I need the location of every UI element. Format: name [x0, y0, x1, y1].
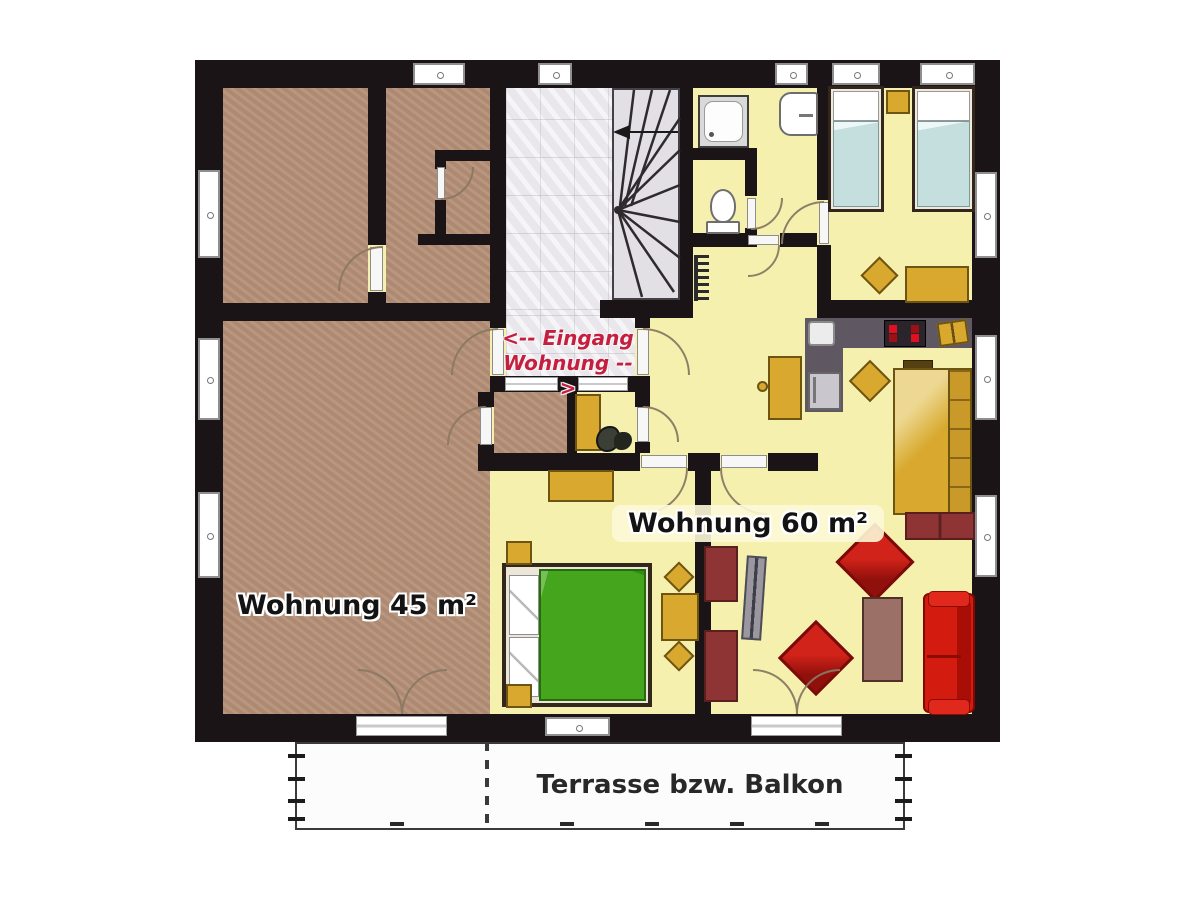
door-leaf — [748, 235, 779, 245]
railing-tick — [730, 822, 744, 826]
sideboard — [704, 546, 738, 602]
window — [975, 335, 997, 420]
apartment-45-living-room — [223, 321, 490, 714]
door-leaf-entrance-60 — [637, 329, 649, 375]
railing-tick — [288, 817, 305, 821]
wall-segment — [768, 453, 818, 471]
coffee-table — [862, 597, 903, 682]
wall-segment — [478, 392, 494, 407]
wall-closet — [435, 150, 490, 161]
label-apartment-45: Wohnung 45 m² — [237, 590, 477, 621]
wardrobe — [548, 470, 614, 502]
pillow — [509, 575, 539, 635]
radiator-icon — [694, 255, 709, 301]
faucet — [799, 114, 813, 117]
apartment-45-room-top-left — [223, 88, 368, 303]
wall-segment — [223, 303, 490, 321]
door-leaf — [637, 407, 649, 442]
railing-tick — [560, 822, 574, 826]
sofa-armrest — [928, 699, 970, 715]
label-apartment-60: Wohnung 60 m² — [612, 505, 884, 542]
door-leaf — [437, 167, 445, 199]
sofa-red — [923, 593, 975, 713]
railing-tick — [288, 777, 305, 781]
wall-bathroom — [693, 148, 745, 160]
twin-bed-1 — [828, 86, 884, 212]
wall-bathroom — [693, 233, 745, 247]
fridge-handle — [813, 377, 816, 403]
railing-tick — [895, 754, 912, 758]
wall-segment — [368, 88, 386, 245]
nightstand — [506, 684, 532, 708]
stove-icon — [884, 320, 926, 347]
sofa-seam — [927, 655, 961, 658]
wall-segment — [635, 442, 650, 453]
label-entrance-line1: <-- Eingang — [498, 326, 638, 351]
blanket-green — [539, 569, 646, 701]
window — [198, 338, 220, 420]
wall-bathroom — [780, 233, 817, 247]
window — [920, 63, 975, 85]
sideboard — [704, 630, 738, 702]
french-door-sill — [356, 716, 447, 736]
sink-icon — [779, 92, 818, 136]
window — [975, 495, 997, 577]
twin-bed-2 — [912, 86, 975, 212]
railing-tick — [288, 754, 305, 758]
nightstand — [506, 541, 532, 565]
window — [832, 63, 880, 85]
railing-tick — [390, 822, 404, 826]
railing-tick — [645, 822, 659, 826]
cutting-board — [936, 319, 969, 347]
window — [413, 63, 465, 85]
shower-icon — [698, 95, 749, 148]
wall-bedroom-tr-left — [817, 245, 831, 300]
stool — [757, 381, 768, 392]
burner — [889, 325, 897, 333]
door-leaf — [480, 407, 492, 445]
wall-stairwell-right — [680, 88, 693, 318]
sofa-armrest — [928, 591, 970, 607]
wall-stairwell-left — [490, 88, 506, 328]
window — [198, 492, 220, 578]
nightstand — [886, 90, 910, 114]
door-leaf — [370, 247, 383, 291]
label-terrace: Terrasse bzw. Balkon — [480, 770, 900, 800]
wall-bedroom-top — [478, 453, 640, 471]
burner — [911, 325, 919, 333]
wall-segment — [688, 453, 720, 471]
window — [198, 170, 220, 258]
window — [975, 172, 997, 258]
door-leaf — [747, 198, 756, 229]
burner — [911, 334, 919, 342]
blanket — [833, 121, 879, 207]
wall-bathroom — [745, 148, 757, 196]
sofa-back — [957, 601, 971, 705]
railing-tick — [815, 822, 829, 826]
wall-segment — [478, 444, 494, 453]
apartment-45-storage — [494, 392, 567, 453]
plan-canvas: Wohnung 45 m² Wohnung 60 m² <-- Eingang … — [0, 0, 1200, 900]
desk-table — [661, 593, 699, 641]
window — [538, 63, 572, 85]
french-door-sill — [751, 716, 842, 736]
pillow — [833, 91, 879, 121]
gold-sofa-back — [948, 368, 972, 515]
label-entrance-line2: Wohnung --> — [498, 351, 638, 401]
shower-drain — [709, 132, 714, 137]
blanket — [917, 121, 970, 207]
gold-sofa-seat — [893, 368, 950, 515]
wall-closet — [418, 234, 490, 245]
window — [545, 717, 610, 736]
pillow — [917, 91, 970, 121]
door-leaf — [641, 455, 687, 468]
door-leaf — [721, 455, 767, 468]
label-entrance: <-- Eingang Wohnung --> — [498, 326, 638, 401]
fridge-icon — [808, 372, 841, 410]
dresser — [905, 266, 969, 303]
kitchen-sink — [808, 321, 835, 346]
railing-tick — [288, 799, 305, 803]
railing-tick — [895, 817, 912, 821]
kitchen-table — [768, 356, 802, 420]
toilet-icon — [710, 189, 736, 223]
red-bench — [905, 512, 975, 540]
staircase-icon — [612, 88, 680, 300]
burner — [889, 334, 897, 342]
wall-segment — [368, 292, 386, 303]
window — [775, 63, 808, 85]
floor-plan: Wohnung 45 m² Wohnung 60 m² <-- Eingang … — [0, 0, 1200, 900]
